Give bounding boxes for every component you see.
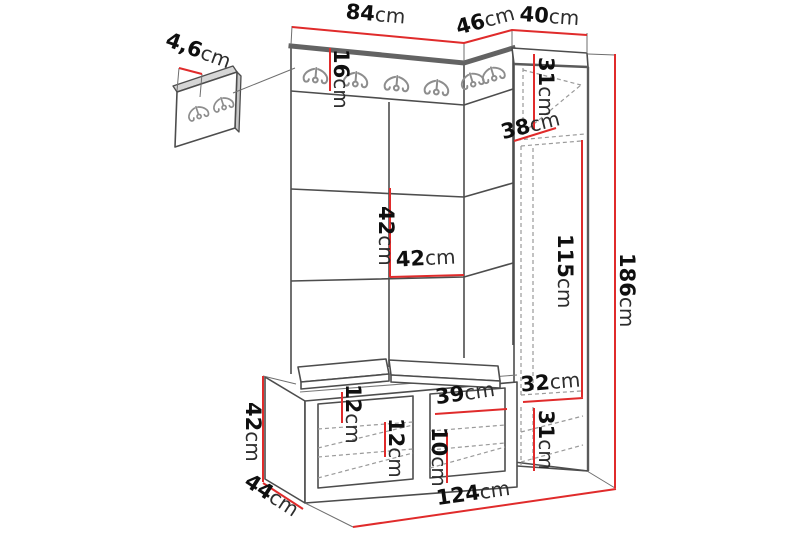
dim-corner-panel-width: 46cm (453, 1, 517, 43)
dim-cabinet-bottom-height: 31cm (534, 408, 558, 471)
svg-text:16cm: 16cm (329, 49, 353, 109)
dim-bench-shelf-spacing: 12cm (384, 418, 408, 478)
dim-bench-top-inset: 12cm (341, 384, 365, 444)
dim-cabinet-width: 40cm (512, 2, 587, 35)
svg-text:42cm: 42cm (374, 206, 398, 266)
svg-text:46cm: 46cm (453, 1, 517, 40)
callout-line (233, 68, 295, 93)
furniture-dimension-diagram: 84cm 46cm 40cm 16cm 4,6cm 31cm 38cm 42cm… (0, 0, 800, 533)
diagram-canvas: 84cm 46cm 40cm 16cm 4,6cm 31cm 38cm 42cm… (0, 0, 800, 533)
svg-text:42cm: 42cm (395, 244, 456, 271)
dim-tile-width: 42cm (390, 244, 464, 277)
hook-board-detail (173, 66, 295, 147)
dim-wall-panel-width: 84cm (292, 0, 464, 43)
svg-text:40cm: 40cm (519, 2, 580, 30)
svg-text:115cm: 115cm (553, 234, 577, 308)
svg-text:186cm: 186cm (615, 253, 639, 327)
dim-bench-height: 42cm (241, 376, 265, 482)
dim-tile-height: 42cm (374, 188, 398, 277)
dim-detail-panel-depth: 4,6cm (162, 28, 234, 74)
dim-hook-rail-height: 16cm (329, 48, 353, 109)
svg-text:31cm: 31cm (534, 410, 558, 470)
svg-text:10cm: 10cm (427, 427, 451, 487)
wall-panel (291, 46, 513, 374)
svg-text:42cm: 42cm (241, 402, 265, 462)
dim-total-height: 186cm (615, 54, 639, 488)
svg-text:4,6cm: 4,6cm (162, 28, 234, 74)
svg-text:84cm: 84cm (345, 0, 407, 29)
svg-text:12cm: 12cm (341, 384, 365, 444)
svg-text:12cm: 12cm (384, 418, 408, 478)
dim-bench-shoe-space: 10cm (427, 427, 451, 487)
